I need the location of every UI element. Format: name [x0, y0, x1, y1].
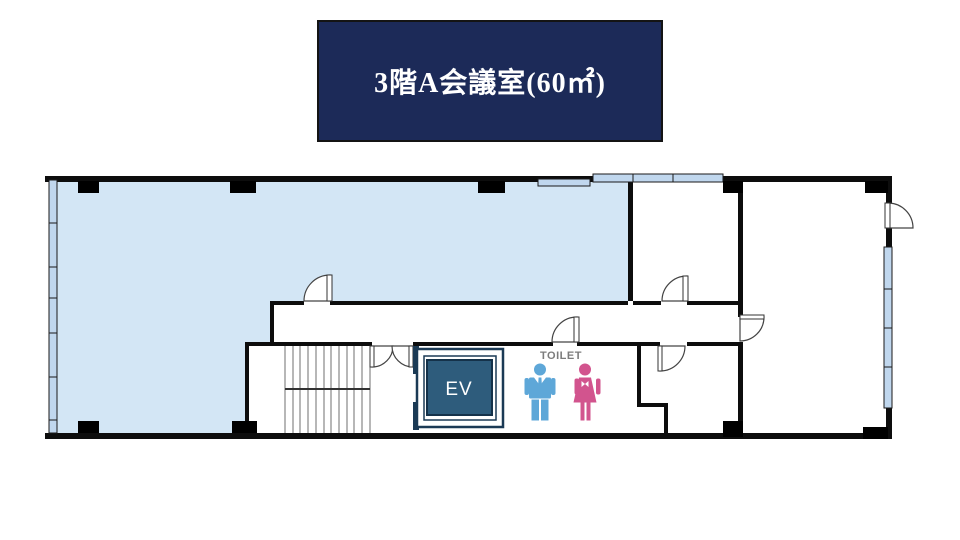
door-leaf [740, 315, 764, 319]
door-leaf [327, 275, 332, 301]
toilet-area: TOILET [525, 350, 601, 421]
elevator: EV [413, 346, 503, 430]
column [723, 421, 743, 437]
door-arc [552, 317, 577, 342]
door-arc [888, 203, 913, 228]
window-segment [538, 179, 590, 186]
column [478, 181, 505, 193]
window-segment [49, 180, 57, 433]
floor-plan-page: 3階A会議室(60㎡) [0, 0, 960, 540]
door-leaf [409, 346, 413, 367]
male-icon [525, 364, 556, 421]
female-icon [574, 364, 601, 421]
column [78, 181, 99, 193]
column [723, 181, 743, 193]
door-arc [740, 317, 764, 341]
elevator-label: EV [445, 379, 472, 400]
door-leaf [574, 317, 579, 342]
column [78, 421, 99, 433]
column [865, 181, 888, 193]
door-arc [372, 346, 393, 367]
window-segment [593, 174, 723, 182]
column [230, 181, 256, 193]
floor-plan: EV TOILET [0, 0, 960, 540]
door-leaf [658, 346, 662, 371]
door-arc [660, 346, 685, 371]
door-leaf [370, 346, 374, 367]
door-leaf [885, 203, 890, 228]
column [232, 421, 257, 433]
door-leaf [683, 276, 688, 301]
column [863, 427, 888, 439]
stairs [285, 346, 370, 433]
toilet-label: TOILET [540, 350, 582, 362]
